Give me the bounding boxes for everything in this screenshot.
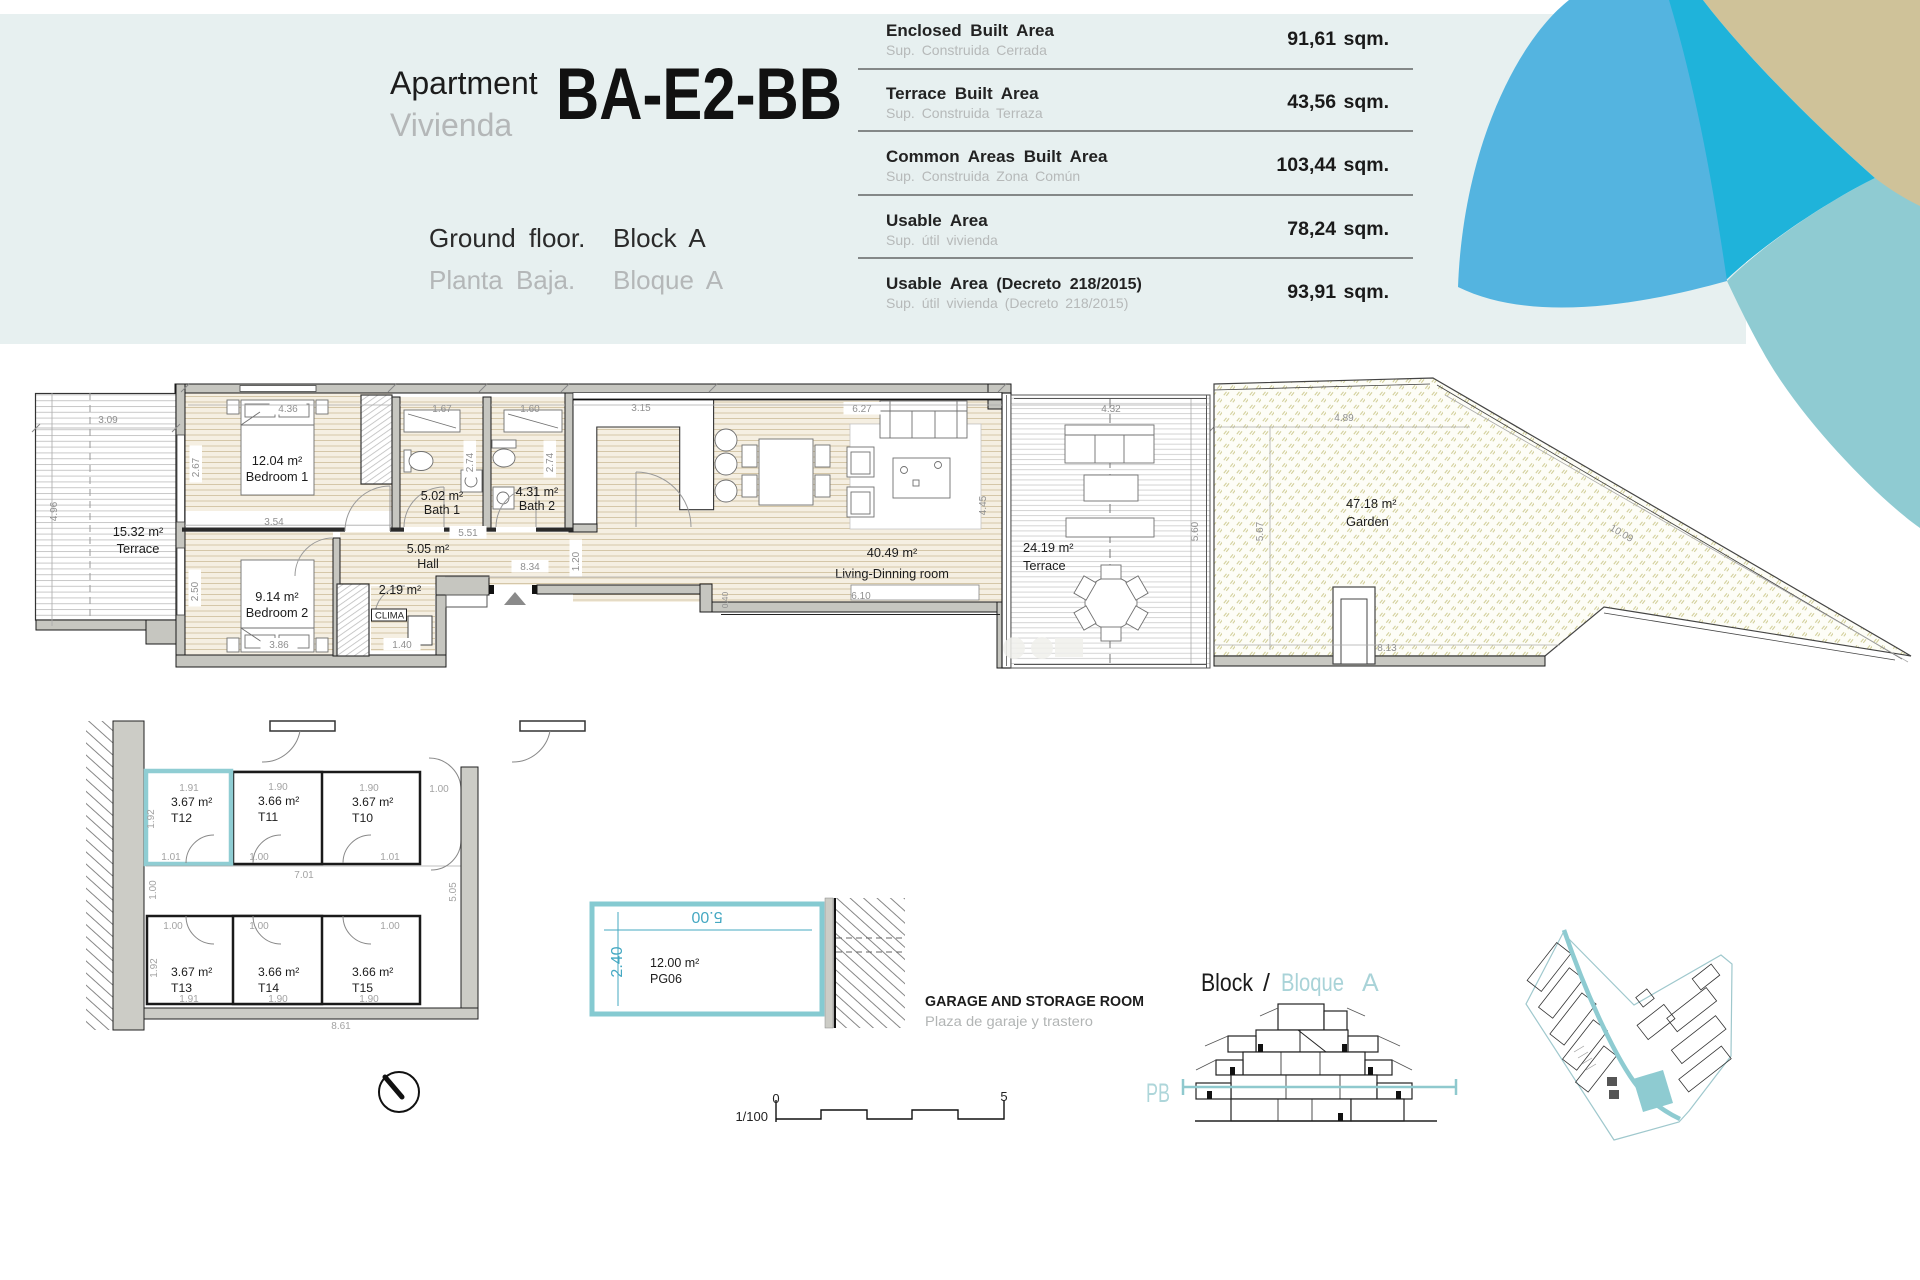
svg-text:Common Areas Built Area: Common Areas Built Area — [886, 147, 1108, 166]
svg-text:3.66 m²: 3.66 m² — [258, 794, 299, 808]
svg-text:Apartment: Apartment — [390, 65, 538, 101]
svg-text:1.40: 1.40 — [392, 640, 412, 651]
svg-text:1.90: 1.90 — [359, 783, 379, 794]
svg-text:3.67 m²: 3.67 m² — [171, 795, 212, 809]
svg-text:/: / — [1263, 969, 1270, 997]
svg-text:5.05 m²: 5.05 m² — [407, 542, 449, 556]
svg-text:A: A — [1362, 969, 1379, 997]
svg-text:T13: T13 — [171, 981, 192, 995]
svg-text:1.90: 1.90 — [268, 994, 288, 1005]
svg-text:Block A: Block A — [613, 223, 706, 253]
svg-text:Bedroom 1: Bedroom 1 — [246, 469, 309, 484]
svg-text:12.00 m²: 12.00 m² — [650, 956, 699, 970]
svg-text:6.27: 6.27 — [852, 404, 872, 415]
svg-text:4.89: 4.89 — [1334, 413, 1354, 424]
svg-text:T11: T11 — [258, 810, 278, 824]
svg-text:1.92: 1.92 — [149, 958, 160, 978]
svg-text:Enclosed Built Area: Enclosed Built Area — [886, 21, 1055, 40]
svg-text:2.40: 2.40 — [609, 946, 626, 977]
svg-text:Bloque: Bloque — [1281, 969, 1344, 997]
svg-text:5.02 m²: 5.02 m² — [421, 489, 463, 503]
svg-text:Hall: Hall — [417, 557, 439, 571]
svg-text:3.67 m²: 3.67 m² — [352, 795, 393, 809]
svg-text:5.60: 5.60 — [1190, 521, 1201, 541]
svg-text:1.01: 1.01 — [161, 852, 181, 863]
svg-text:Terrace: Terrace — [1023, 558, 1066, 573]
svg-text:3.66 m²: 3.66 m² — [258, 965, 299, 979]
svg-text:1.00: 1.00 — [429, 784, 449, 795]
svg-text:3.54: 3.54 — [264, 517, 284, 528]
svg-text:T10: T10 — [352, 811, 373, 825]
svg-text:6.10: 6.10 — [851, 591, 871, 602]
svg-text:47.18 m²: 47.18 m² — [1346, 496, 1397, 511]
svg-text:43,56 sqm.: 43,56 sqm. — [1287, 91, 1389, 113]
svg-text:1.67: 1.67 — [432, 404, 452, 415]
svg-text:2.50: 2.50 — [190, 581, 201, 601]
svg-text:3.86: 3.86 — [269, 640, 289, 651]
svg-text:2.19 m²: 2.19 m² — [379, 583, 421, 597]
svg-text:1.00: 1.00 — [148, 880, 159, 900]
svg-text:3.09: 3.09 — [98, 415, 118, 426]
svg-text:1.91: 1.91 — [179, 783, 199, 794]
svg-text:3.66 m²: 3.66 m² — [352, 965, 393, 979]
svg-text:5.05: 5.05 — [448, 882, 459, 902]
svg-text:2.74: 2.74 — [545, 452, 556, 472]
svg-text:103,44 sqm.: 103,44 sqm. — [1276, 154, 1389, 176]
svg-text:Sup. útil vivienda: Sup. útil vivienda — [886, 232, 998, 248]
svg-text:1.20: 1.20 — [571, 551, 582, 571]
svg-text:Sup. Construida Cerrada: Sup. Construida Cerrada — [886, 42, 1047, 58]
svg-text:4.96: 4.96 — [49, 501, 60, 521]
svg-text:Sup. Construida Terraza: Sup. Construida Terraza — [886, 105, 1043, 121]
svg-text:4.31 m²: 4.31 m² — [516, 485, 558, 499]
svg-text:Bath 1: Bath 1 — [424, 503, 460, 517]
svg-text:1.00: 1.00 — [249, 921, 269, 932]
svg-text:Block: Block — [1201, 969, 1253, 997]
svg-text:1.60: 1.60 — [520, 404, 540, 415]
svg-text:3.67 m²: 3.67 m² — [171, 965, 212, 979]
svg-text:78,24 sqm.: 78,24 sqm. — [1287, 218, 1389, 240]
svg-text:2.74: 2.74 — [465, 452, 476, 472]
svg-text:8.34: 8.34 — [520, 562, 540, 573]
svg-text:Living-Dinning room: Living-Dinning room — [835, 566, 949, 581]
svg-text:40.49 m²: 40.49 m² — [867, 545, 918, 560]
svg-text:T14: T14 — [258, 981, 279, 995]
svg-text:5: 5 — [1000, 1089, 1007, 1104]
svg-text:Garden: Garden — [1346, 514, 1389, 529]
svg-text:BA-E2-BB: BA-E2-BB — [556, 54, 842, 135]
svg-text:91,61 sqm.: 91,61 sqm. — [1287, 28, 1389, 50]
svg-text:1.90: 1.90 — [359, 994, 379, 1005]
svg-text:Sup. útil vivienda (Decreto 21: Sup. útil vivienda (Decreto 218/2015) — [886, 295, 1128, 311]
svg-text:2.67: 2.67 — [191, 457, 202, 477]
svg-text:Terrace: Terrace — [117, 541, 160, 556]
svg-text:93,91 sqm.: 93,91 sqm. — [1287, 281, 1389, 303]
svg-text:4.32: 4.32 — [1101, 404, 1121, 415]
svg-text:Terrace Built Area: Terrace Built Area — [886, 84, 1039, 103]
svg-text:1/100: 1/100 — [735, 1109, 768, 1124]
svg-text:Vivienda: Vivienda — [390, 107, 512, 143]
svg-text:CLIMA: CLIMA — [375, 611, 405, 622]
svg-text:1.90: 1.90 — [268, 782, 288, 793]
svg-text:0: 0 — [772, 1091, 779, 1106]
svg-text:9.14 m²: 9.14 m² — [255, 589, 299, 604]
svg-text:Planta Baja.: Planta Baja. — [429, 265, 575, 295]
svg-text:1.92: 1.92 — [146, 809, 157, 829]
svg-text:5.00: 5.00 — [691, 908, 722, 925]
svg-text:1.00: 1.00 — [380, 921, 400, 932]
svg-text:0.40: 0.40 — [720, 591, 730, 608]
svg-text:7.01: 7.01 — [294, 870, 314, 881]
svg-text:1.00: 1.00 — [163, 921, 183, 932]
svg-text:1.91: 1.91 — [179, 994, 199, 1005]
svg-text:Bath 2: Bath 2 — [519, 499, 555, 513]
svg-text:4.45: 4.45 — [978, 495, 989, 515]
svg-text:Usable Area: Usable Area — [886, 211, 988, 230]
svg-text:PG06: PG06 — [650, 972, 682, 986]
svg-text:8.61: 8.61 — [331, 1021, 351, 1032]
svg-text:Ground floor.: Ground floor. — [429, 223, 585, 253]
svg-text:T12: T12 — [171, 811, 192, 825]
svg-text:GARAGE AND STORAGE ROOM: GARAGE AND STORAGE ROOM — [925, 994, 1144, 1010]
svg-text:4.36: 4.36 — [278, 404, 298, 415]
svg-text:Usable Area (Decreto 218/2015): Usable Area (Decreto 218/2015) — [886, 274, 1142, 293]
svg-text:1.00: 1.00 — [249, 852, 269, 863]
svg-text:Bedroom 2: Bedroom 2 — [246, 605, 309, 620]
svg-text:5.67: 5.67 — [1255, 521, 1266, 541]
svg-text:24.19 m²: 24.19 m² — [1023, 540, 1074, 555]
svg-text:PB: PB — [1146, 1078, 1170, 1108]
svg-text:12.04 m²: 12.04 m² — [252, 453, 303, 468]
svg-text:Plaza de garaje y trastero: Plaza de garaje y trastero — [925, 1014, 1093, 1029]
svg-text:Bloque A: Bloque A — [613, 265, 724, 295]
svg-text:1.01: 1.01 — [380, 852, 400, 863]
svg-text:Sup. Construida Zona Común: Sup. Construida Zona Común — [886, 168, 1080, 184]
svg-text:T15: T15 — [352, 981, 373, 995]
svg-text:5.51: 5.51 — [458, 528, 478, 539]
svg-text:15.32 m²: 15.32 m² — [113, 524, 164, 539]
